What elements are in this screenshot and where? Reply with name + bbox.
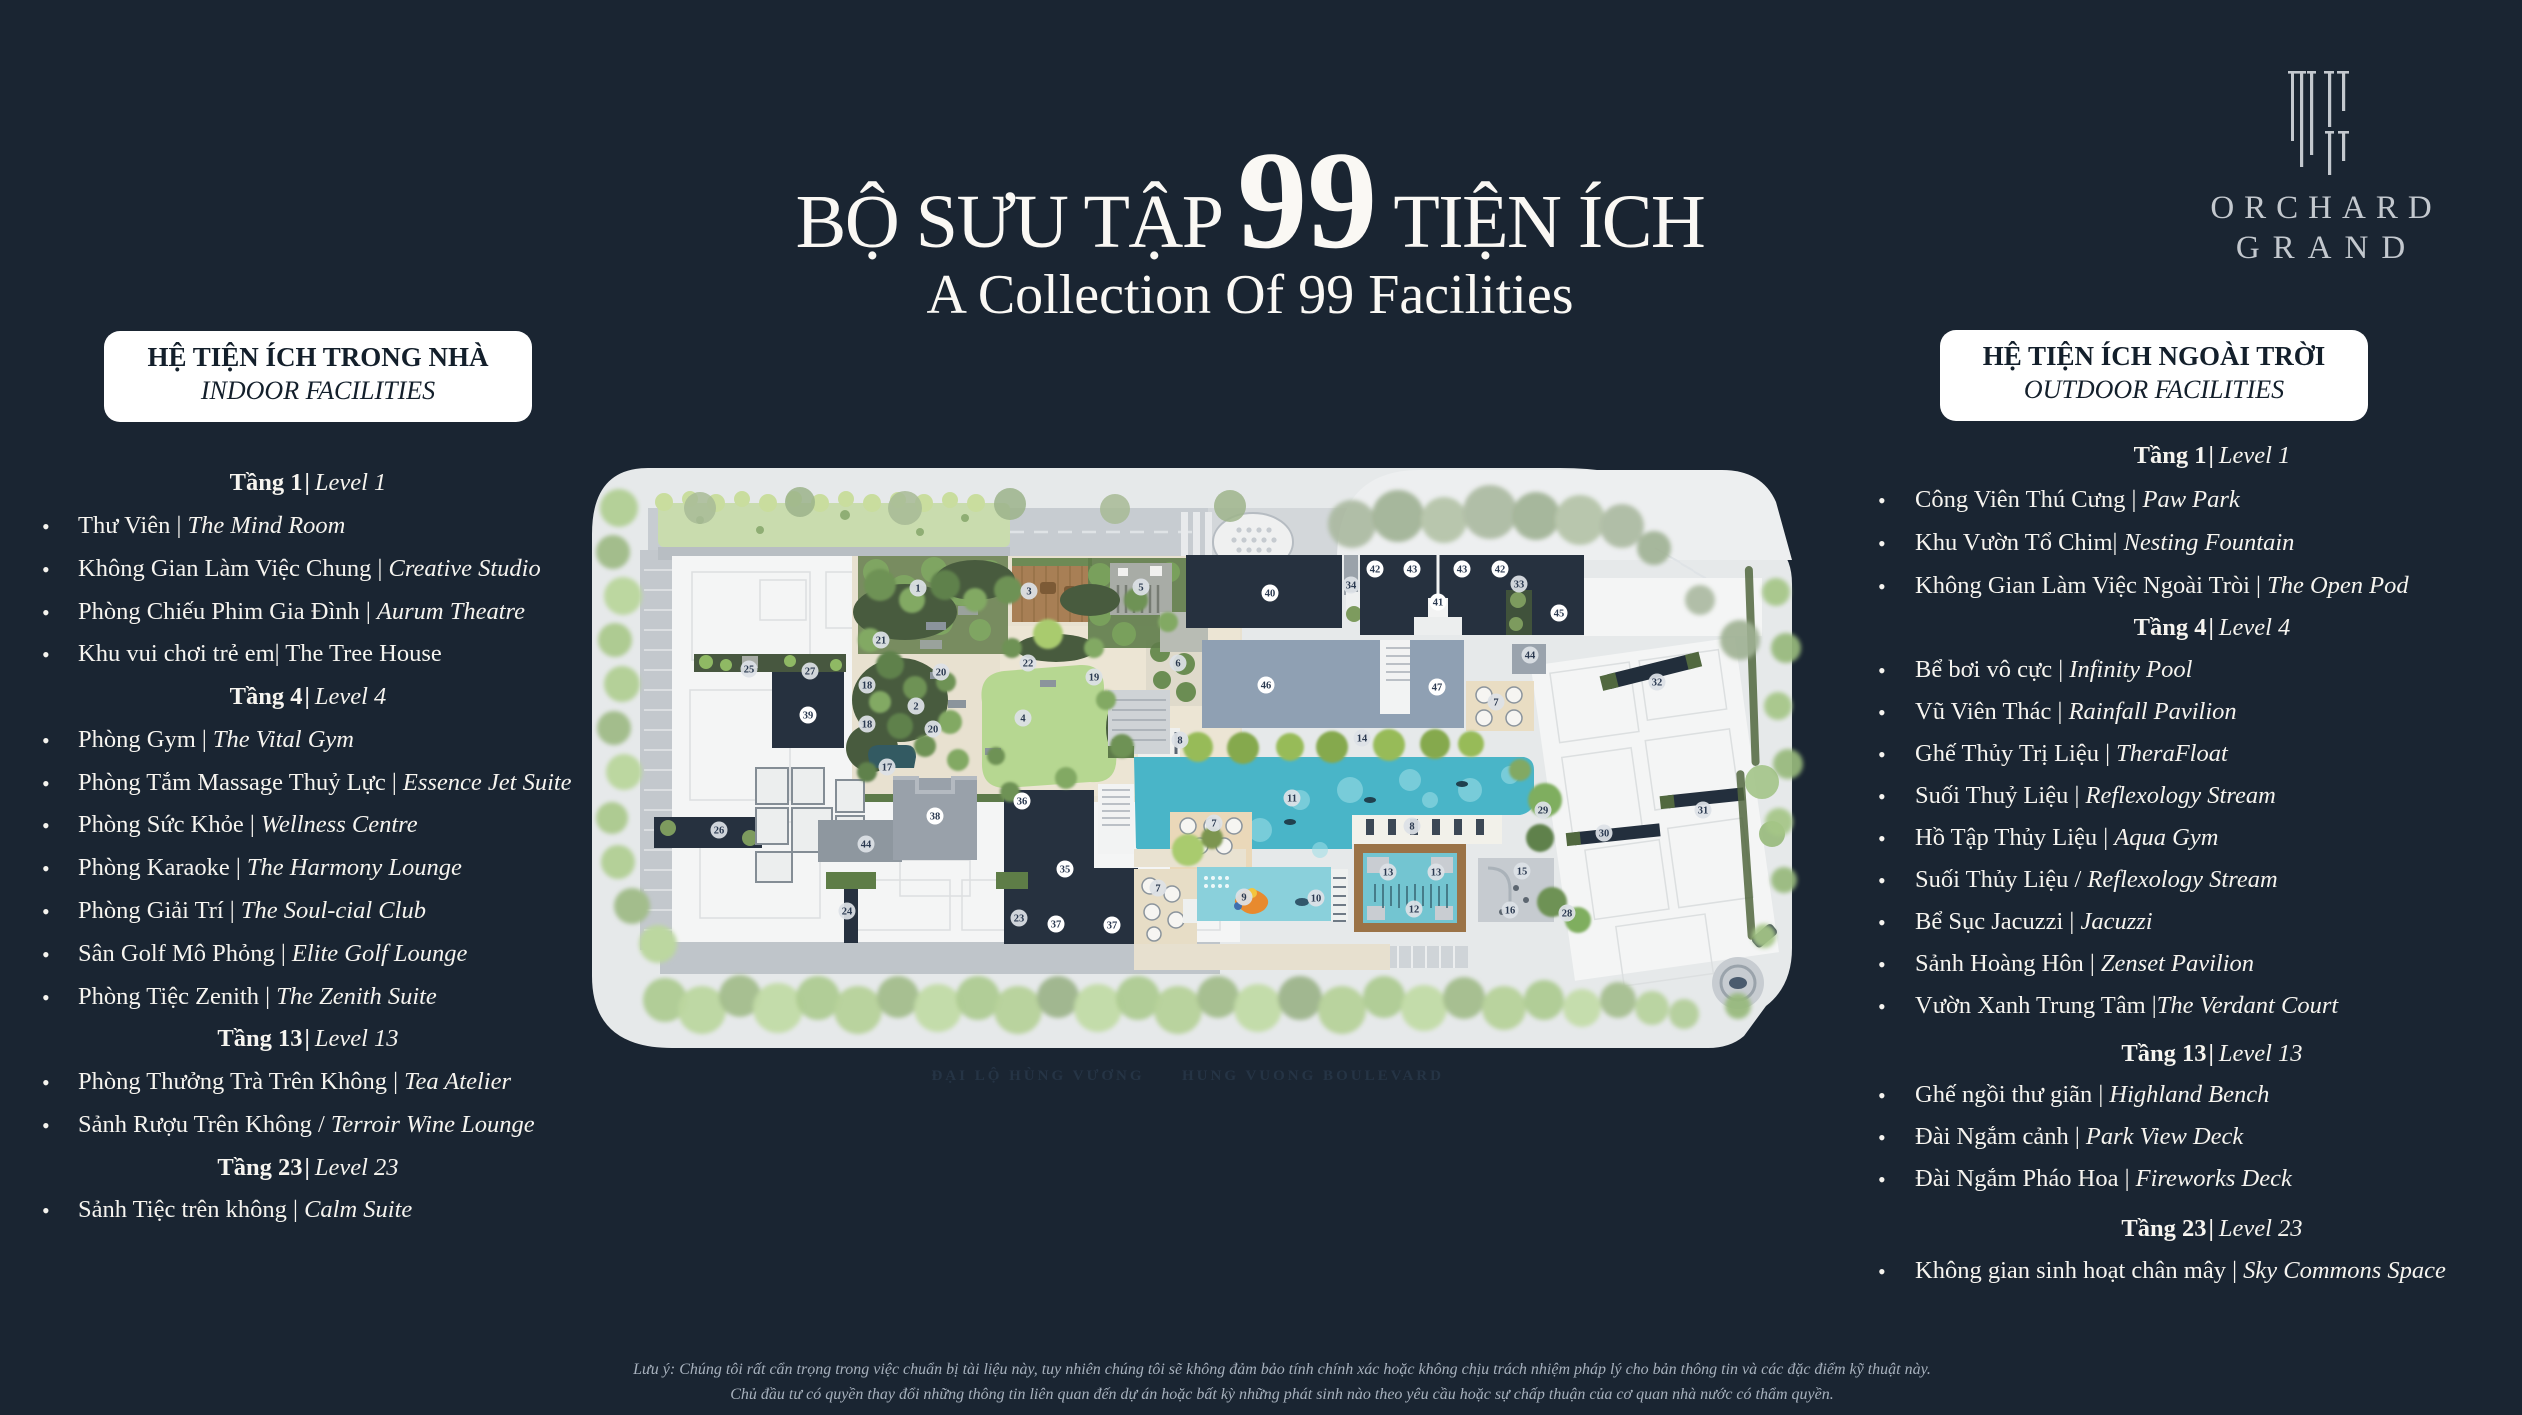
svg-text:46: 46 bbox=[1261, 681, 1272, 692]
svg-text:26: 26 bbox=[714, 826, 725, 837]
svg-text:39: 39 bbox=[803, 711, 814, 722]
svg-text:7: 7 bbox=[1493, 698, 1498, 709]
svg-text:5: 5 bbox=[1138, 583, 1143, 594]
svg-text:14: 14 bbox=[1357, 734, 1368, 745]
svg-text:33: 33 bbox=[1514, 580, 1525, 591]
svg-text:25: 25 bbox=[744, 665, 755, 676]
svg-text:43: 43 bbox=[1407, 565, 1418, 576]
svg-text:16: 16 bbox=[1505, 906, 1516, 917]
svg-text:20: 20 bbox=[928, 725, 939, 736]
svg-text:34: 34 bbox=[1346, 581, 1357, 592]
svg-text:12: 12 bbox=[1409, 905, 1420, 916]
svg-text:11: 11 bbox=[1287, 794, 1297, 805]
svg-text:45: 45 bbox=[1554, 609, 1565, 620]
svg-text:18: 18 bbox=[862, 720, 873, 731]
svg-text:6: 6 bbox=[1175, 659, 1180, 670]
svg-text:43: 43 bbox=[1457, 565, 1468, 576]
svg-text:1: 1 bbox=[915, 584, 920, 595]
svg-text:13: 13 bbox=[1431, 868, 1442, 879]
svg-text:41: 41 bbox=[1433, 598, 1444, 609]
svg-text:42: 42 bbox=[1495, 565, 1506, 576]
svg-text:19: 19 bbox=[1089, 673, 1100, 684]
svg-text:30: 30 bbox=[1599, 829, 1610, 840]
svg-text:7: 7 bbox=[1211, 819, 1216, 830]
svg-text:31: 31 bbox=[1698, 806, 1709, 817]
svg-text:27: 27 bbox=[805, 667, 816, 678]
svg-text:44: 44 bbox=[861, 840, 872, 851]
svg-text:29: 29 bbox=[1538, 806, 1549, 817]
svg-text:20: 20 bbox=[936, 668, 947, 679]
svg-text:42: 42 bbox=[1370, 565, 1381, 576]
svg-text:32: 32 bbox=[1652, 678, 1663, 689]
svg-text:37: 37 bbox=[1107, 921, 1118, 932]
svg-text:44: 44 bbox=[1525, 651, 1536, 662]
svg-text:8: 8 bbox=[1409, 822, 1414, 833]
svg-text:37: 37 bbox=[1051, 920, 1062, 931]
svg-text:36: 36 bbox=[1017, 797, 1028, 808]
svg-text:35: 35 bbox=[1060, 865, 1071, 876]
svg-text:13: 13 bbox=[1383, 868, 1394, 879]
svg-text:21: 21 bbox=[876, 636, 887, 647]
svg-text:47: 47 bbox=[1432, 683, 1443, 694]
svg-text:8: 8 bbox=[1177, 736, 1182, 747]
svg-text:18: 18 bbox=[862, 681, 873, 692]
svg-text:40: 40 bbox=[1265, 589, 1276, 600]
svg-text:17: 17 bbox=[882, 763, 893, 774]
svg-text:28: 28 bbox=[1562, 909, 1573, 920]
svg-text:4: 4 bbox=[1020, 714, 1026, 725]
svg-text:9: 9 bbox=[1241, 893, 1246, 904]
svg-text:3: 3 bbox=[1026, 587, 1031, 598]
svg-text:23: 23 bbox=[1014, 914, 1025, 925]
svg-text:10: 10 bbox=[1311, 894, 1322, 905]
svg-text:22: 22 bbox=[1023, 659, 1034, 670]
svg-text:38: 38 bbox=[930, 812, 941, 823]
svg-text:7: 7 bbox=[1155, 884, 1160, 895]
svg-text:15: 15 bbox=[1517, 867, 1528, 878]
svg-text:24: 24 bbox=[842, 907, 853, 918]
svg-text:2: 2 bbox=[913, 702, 918, 713]
